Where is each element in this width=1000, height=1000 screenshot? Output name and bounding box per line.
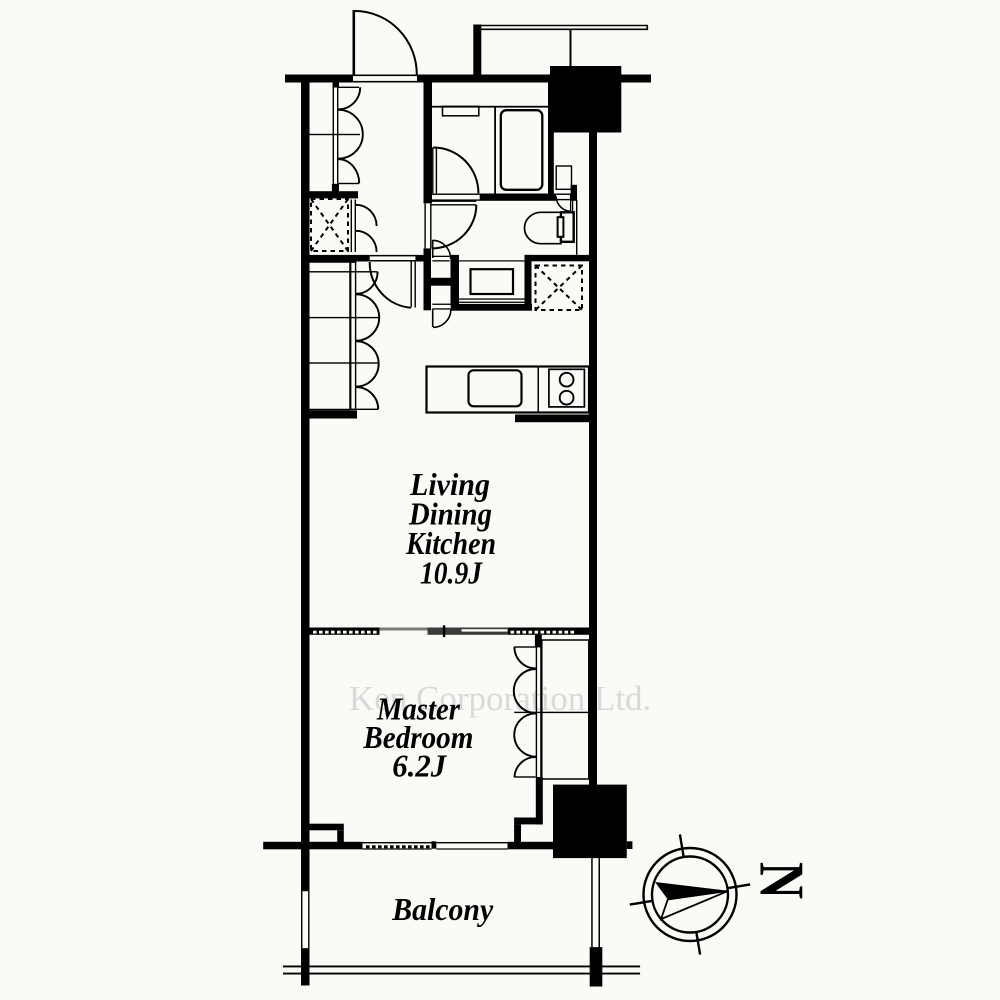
svg-text:Balcony: Balcony <box>391 892 494 927</box>
svg-text:10.9J: 10.9J <box>420 556 483 591</box>
svg-text:N: N <box>746 862 817 899</box>
svg-text:6.2J: 6.2J <box>392 748 447 784</box>
